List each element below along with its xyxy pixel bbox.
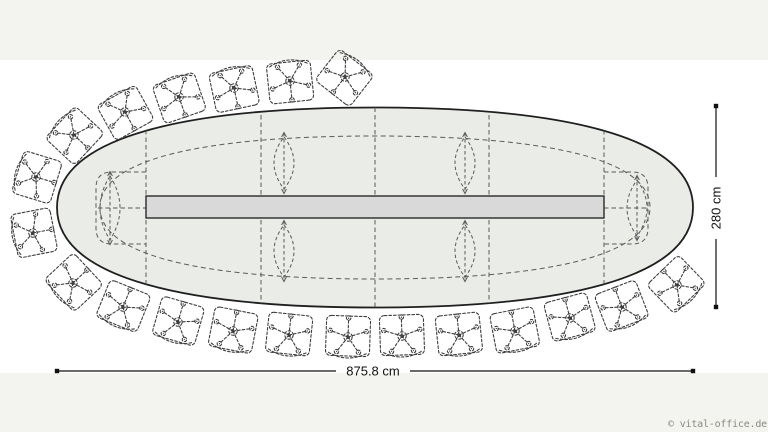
dimension-height-label: 280 cm <box>709 187 724 230</box>
dimension-height: 280 cm <box>709 104 724 309</box>
floor-plan-page: 875.8 cm 280 cm © vital-office.de <box>0 0 768 432</box>
chair <box>8 207 58 258</box>
chair <box>207 306 258 356</box>
chair <box>265 312 313 359</box>
watermark: © vital-office.de <box>668 419 767 430</box>
dimension-width: 875.8 cm <box>55 364 695 379</box>
cable-channel <box>146 196 604 218</box>
conference-table-drawing: 875.8 cm 280 cm <box>0 0 768 432</box>
chair <box>435 312 483 359</box>
chair <box>95 279 152 335</box>
chair <box>489 306 540 356</box>
chair <box>266 58 314 105</box>
chair <box>208 63 260 113</box>
chair <box>543 292 596 344</box>
chair <box>379 314 424 358</box>
chair <box>325 315 370 359</box>
chair <box>594 279 650 334</box>
chair <box>151 70 206 124</box>
chair <box>9 150 62 204</box>
chair <box>151 296 205 349</box>
chair <box>315 47 376 107</box>
dimension-width-label: 875.8 cm <box>346 364 399 379</box>
